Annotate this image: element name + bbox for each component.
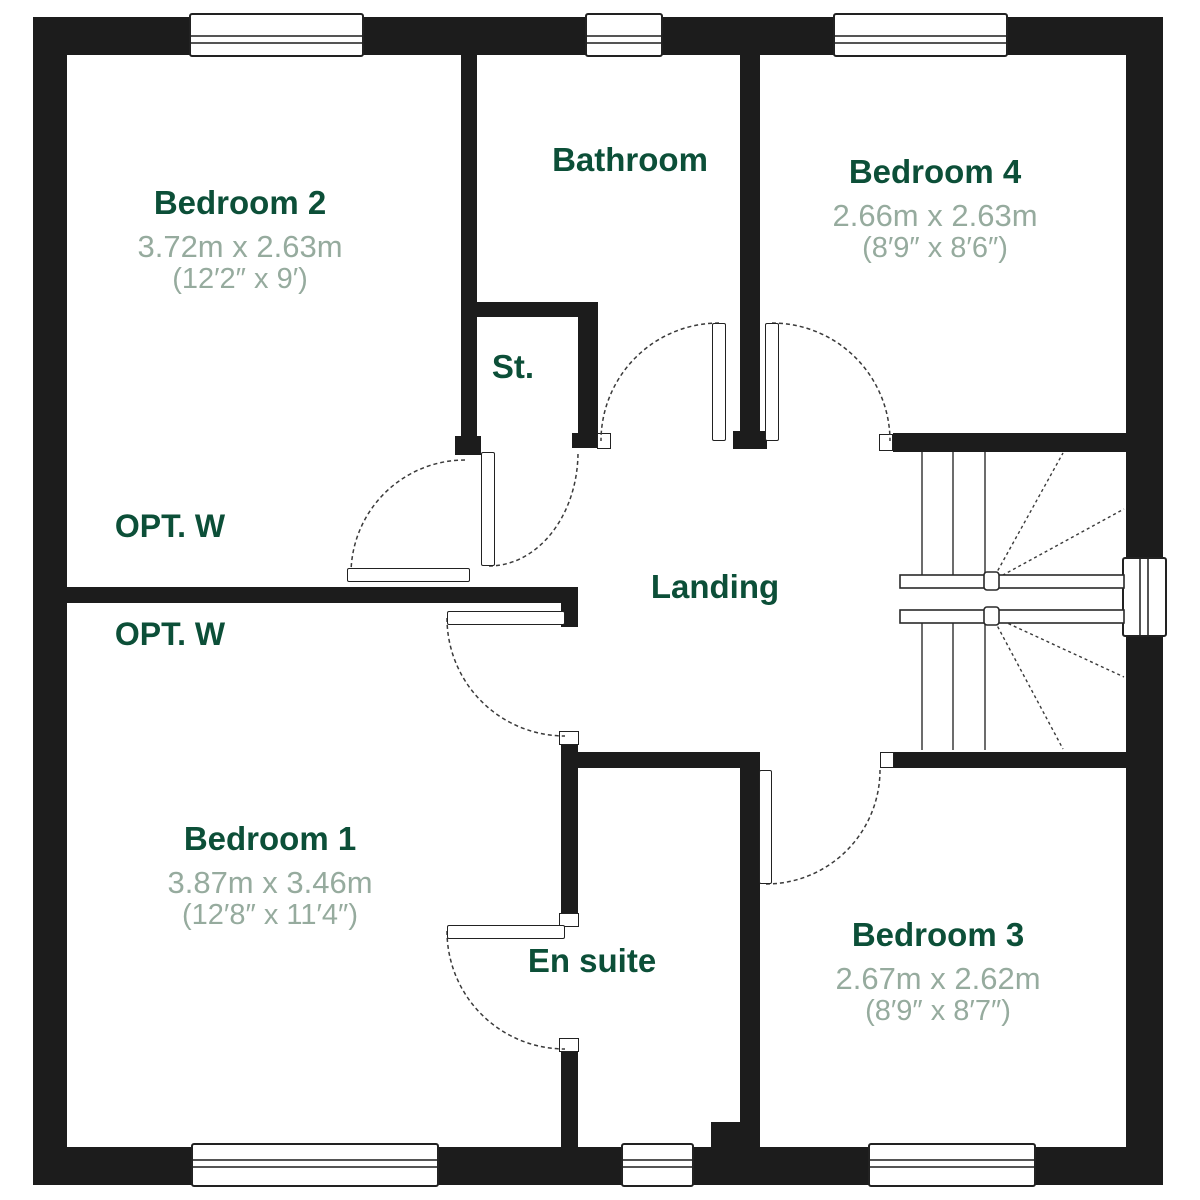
room-label-bedroom3: Bedroom 3 2.67m x 2.62m (8′9″ x 8′7″) <box>788 918 1088 1027</box>
annotation-text: OPT. W <box>95 618 245 652</box>
room-name: Bedroom 3 <box>788 918 1088 953</box>
room-dims-imperial: (12′8″ x 11′4″) <box>105 900 435 930</box>
room-label-bedroom4: Bedroom 4 2.66m x 2.63m (8′9″ x 8′6″) <box>785 155 1085 264</box>
room-name: Bedroom 2 <box>80 186 400 221</box>
door-arc-bedroom1 <box>447 618 565 736</box>
door-leaf-bathroom <box>712 323 726 441</box>
room-label-bathroom: Bathroom <box>530 143 730 178</box>
stair-landing-bar <box>900 575 1124 588</box>
stair-newel <box>984 572 999 590</box>
door-leaf-bedroom1 <box>447 611 565 625</box>
room-name: Bathroom <box>530 143 730 178</box>
door-arc-bathroom <box>601 323 719 441</box>
room-name: Bedroom 1 <box>105 822 435 857</box>
room-label-landing: Landing <box>615 570 815 605</box>
door-leaf-bedroom3 <box>759 770 772 884</box>
room-label-ensuite: En suite <box>502 944 682 979</box>
door-leaf-bedroom4 <box>765 323 779 441</box>
room-dims-imperial: (8′9″ x 8′6″) <box>785 233 1085 263</box>
door-arc-bedroom4 <box>772 323 890 441</box>
annotation-text: OPT. W <box>95 510 245 544</box>
room-name: Bedroom 4 <box>785 155 1085 190</box>
annotation-opt-wardrobe-top: OPT. W <box>95 510 245 544</box>
stair-newel <box>984 607 999 625</box>
room-label-bedroom1: Bedroom 1 3.87m x 3.46m (12′8″ x 11′4″) <box>105 822 435 931</box>
door-leaf-ensuite <box>447 925 565 939</box>
room-name: St. <box>468 350 558 385</box>
door-leaf-storage <box>481 452 495 566</box>
room-name: Landing <box>615 570 815 605</box>
floor-plan: Bedroom 2 3.72m x 2.63m (12′2″ x 9′) Bat… <box>0 0 1200 1200</box>
room-dims-imperial: (12′2″ x 9′) <box>80 264 400 294</box>
door-leaf-bedroom2 <box>347 568 470 582</box>
door-arc-bedroom2 <box>351 460 465 574</box>
room-label-storage: St. <box>468 350 558 385</box>
annotation-opt-wardrobe-bottom: OPT. W <box>95 618 245 652</box>
staircase <box>900 452 1124 750</box>
room-label-bedroom2: Bedroom 2 3.72m x 2.63m (12′2″ x 9′) <box>80 186 400 295</box>
room-dims-metric: 2.66m x 2.63m <box>785 199 1085 234</box>
room-name: En suite <box>502 944 682 979</box>
room-dims-imperial: (8′9″ x 8′7″) <box>788 996 1088 1026</box>
door-arc-storage <box>489 452 578 566</box>
stair-landing-bar <box>900 610 1124 623</box>
room-dims-metric: 3.87m x 3.46m <box>105 866 435 901</box>
room-dims-metric: 2.67m x 2.62m <box>788 962 1088 997</box>
room-dims-metric: 3.72m x 2.63m <box>80 230 400 265</box>
door-arc-bedroom3 <box>766 770 880 884</box>
